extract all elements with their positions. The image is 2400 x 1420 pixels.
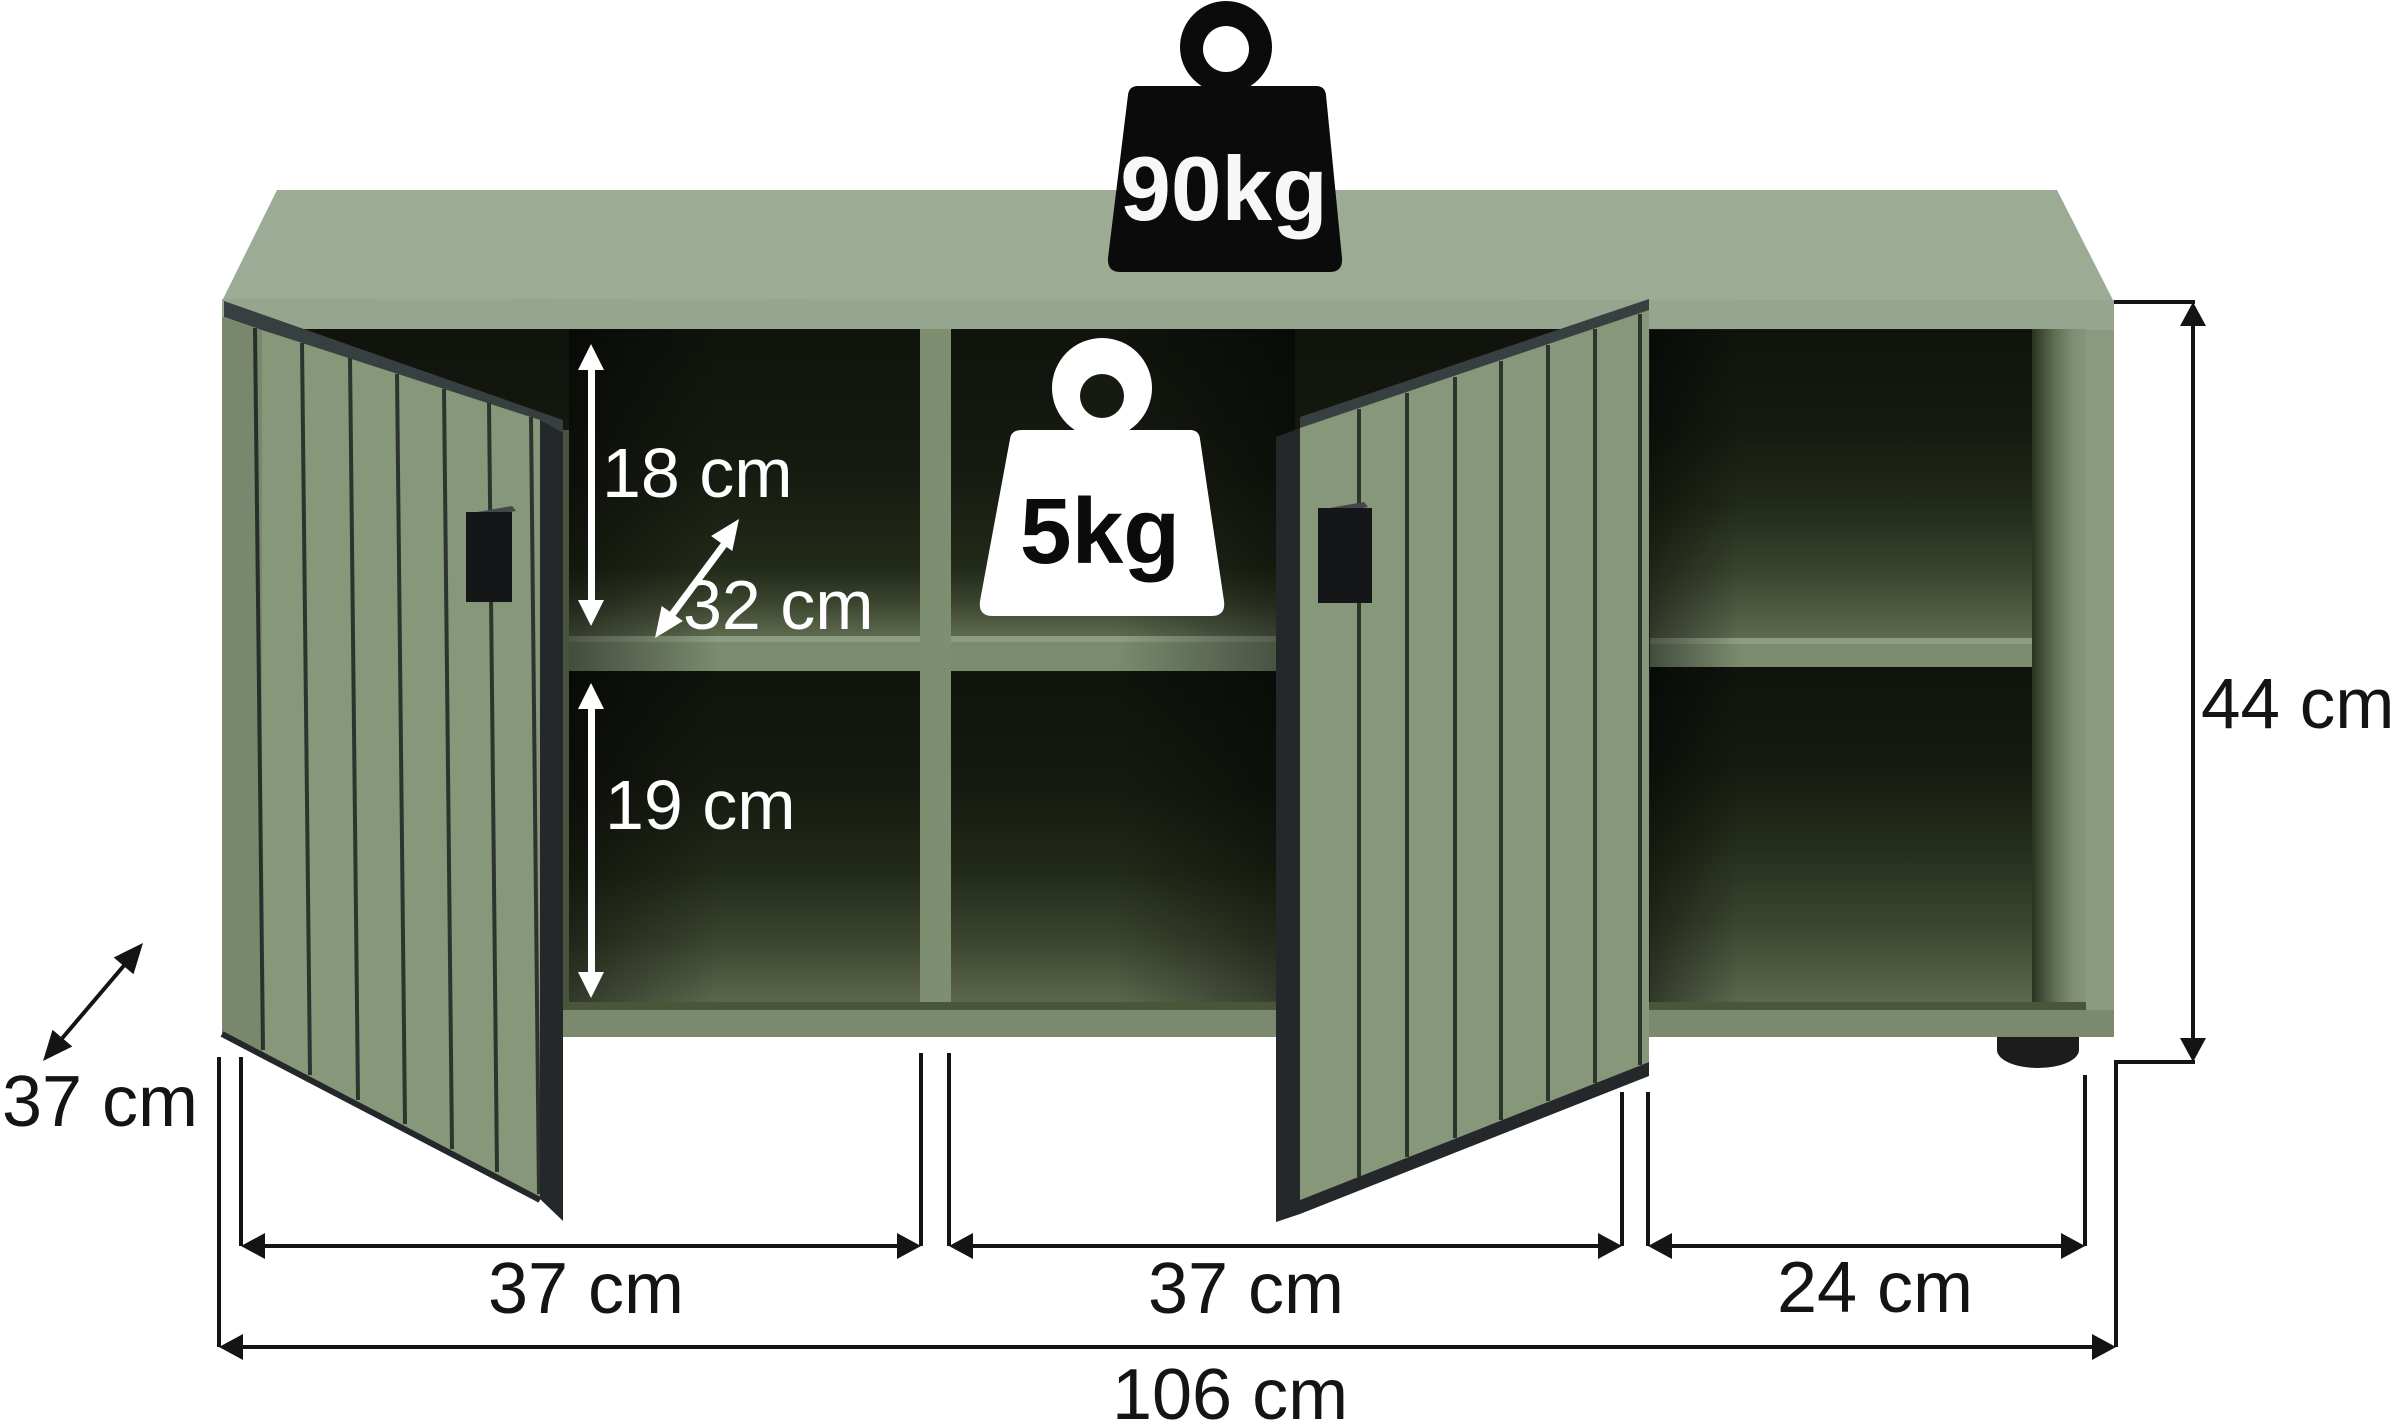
svg-text:90kg: 90kg xyxy=(1120,139,1327,240)
svg-text:106 cm: 106 cm xyxy=(1112,1355,1348,1420)
svg-text:44 cm: 44 cm xyxy=(2201,665,2394,744)
svg-text:19 cm: 19 cm xyxy=(605,766,796,844)
svg-text:37 cm: 37 cm xyxy=(488,1249,684,1329)
svg-text:18 cm: 18 cm xyxy=(602,434,793,512)
svg-text:24 cm: 24 cm xyxy=(1777,1248,1973,1328)
svg-text:32 cm: 32 cm xyxy=(683,566,874,644)
svg-text:37 cm: 37 cm xyxy=(1148,1249,1344,1329)
svg-text:37 cm: 37 cm xyxy=(2,1062,198,1142)
svg-text:5kg: 5kg xyxy=(1020,479,1180,583)
